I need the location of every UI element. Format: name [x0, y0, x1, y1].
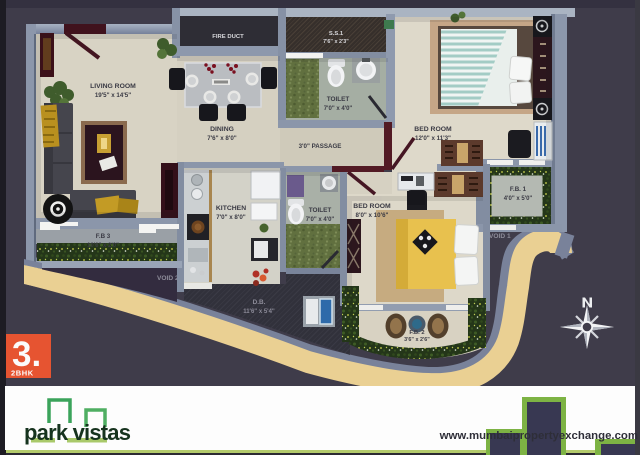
svg-text:F.B. 2: F.B. 2	[409, 330, 424, 336]
svg-text:10'6" x 2'0": 10'6" x 2'0"	[87, 243, 119, 249]
svg-text:8'0" x 10'6": 8'0" x 10'6"	[356, 212, 389, 219]
svg-text:4'0" x 5'0": 4'0" x 5'0"	[504, 196, 533, 202]
svg-text:12'0" x 11'3": 12'0" x 11'3"	[415, 135, 451, 142]
svg-text:7'6" x 2'3": 7'6" x 2'3"	[323, 39, 349, 45]
svg-text:KITCHEN: KITCHEN	[216, 205, 246, 212]
svg-text:FIRE DUCT: FIRE DUCT	[212, 34, 244, 40]
svg-text:D.B.: D.B.	[253, 299, 266, 306]
svg-text:TOILET: TOILET	[327, 96, 350, 103]
svg-text:3'6" x 2'6": 3'6" x 2'6"	[404, 337, 430, 343]
svg-text:11'6" x 5'4": 11'6" x 5'4"	[243, 309, 275, 315]
svg-text:19'5" x 14'5": 19'5" x 14'5"	[95, 92, 131, 99]
svg-text:park vistas: park vistas	[24, 420, 131, 445]
svg-text:7'6" x 8'0": 7'6" x 8'0"	[207, 135, 237, 142]
svg-text:VOID 2: VOID 2	[157, 275, 179, 282]
svg-text:S.S.1: S.S.1	[329, 31, 344, 37]
svg-text:3'0" PASSAGE: 3'0" PASSAGE	[299, 143, 342, 150]
svg-text:BED ROOM: BED ROOM	[353, 203, 391, 210]
svg-text:VOID 1: VOID 1	[489, 233, 511, 240]
svg-text:www.mumbaipropertyexchange.com: www.mumbaipropertyexchange.com	[439, 430, 638, 442]
svg-text:TOILET: TOILET	[309, 207, 332, 214]
svg-text:7'0" x 8'0": 7'0" x 8'0"	[216, 214, 246, 221]
svg-text:2BHK: 2BHK	[11, 369, 34, 378]
svg-text:F.B 3: F.B 3	[96, 233, 111, 240]
svg-text:7'0" x 4'0": 7'0" x 4'0"	[306, 217, 335, 223]
svg-text:BED ROOM: BED ROOM	[414, 126, 452, 133]
svg-text:DINING: DINING	[210, 126, 234, 133]
svg-text:7'0" x 4'0": 7'0" x 4'0"	[324, 106, 353, 112]
svg-text:F.B. 1: F.B. 1	[510, 186, 527, 193]
svg-text:LIVING ROOM: LIVING ROOM	[90, 83, 136, 90]
